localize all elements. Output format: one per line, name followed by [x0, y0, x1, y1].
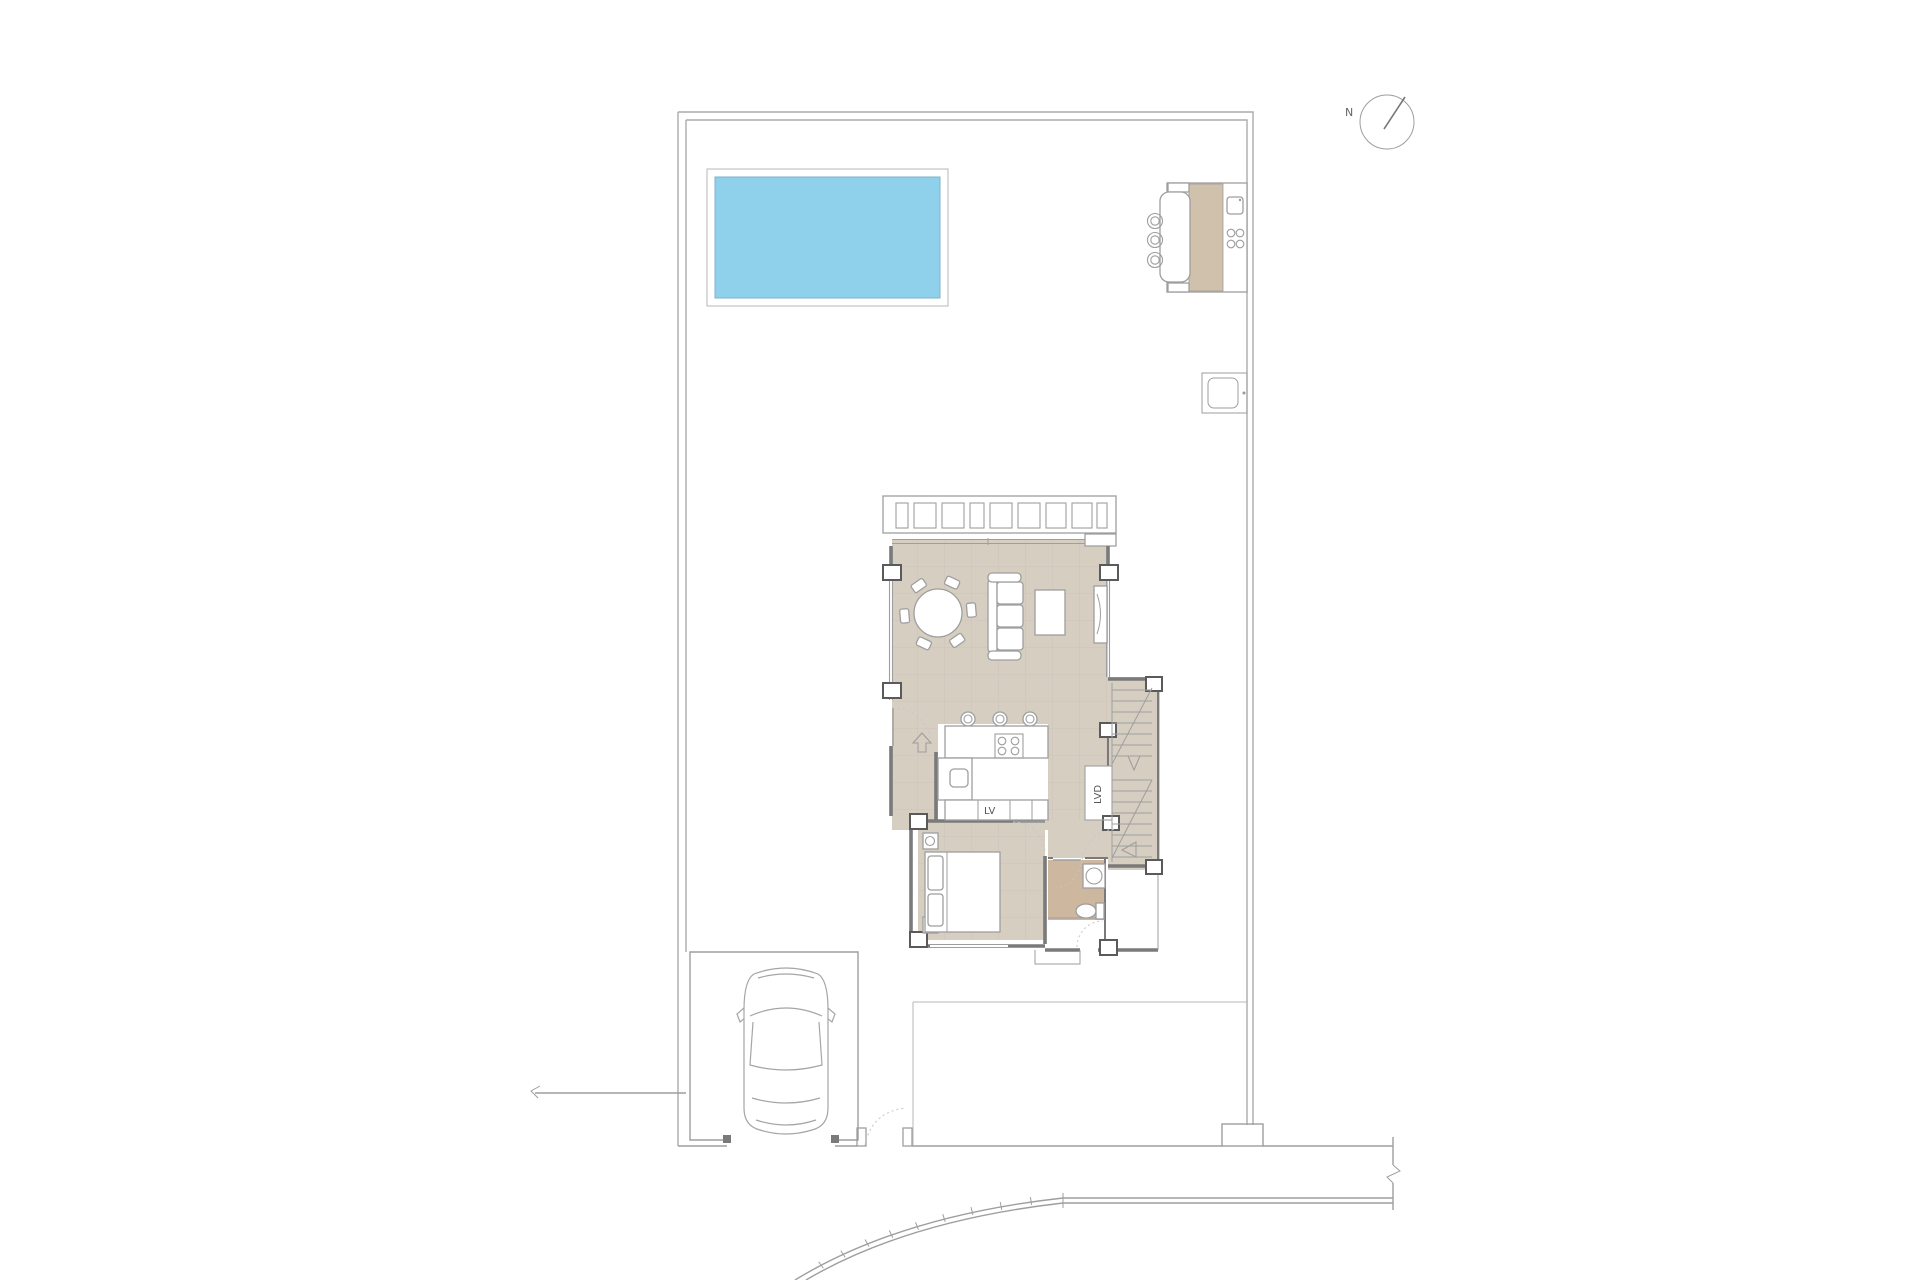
gate-post	[903, 1128, 912, 1146]
garage	[690, 952, 858, 1143]
outdoor-kitchen	[1148, 183, 1248, 292]
bench-cap	[1168, 283, 1189, 292]
road-curve-inner	[806, 1203, 1063, 1280]
break-mark	[1387, 1165, 1400, 1183]
bench-cap	[1168, 183, 1189, 192]
outdoor-table-strip	[1189, 184, 1223, 291]
patio	[913, 1002, 1247, 1145]
north-label: N	[1345, 106, 1353, 119]
site-plan-canvas: N	[0, 0, 1920, 1280]
north-circle	[1360, 95, 1414, 149]
north-indicator: N	[1345, 95, 1414, 149]
shower-floor	[1048, 920, 1104, 947]
faucet-dot	[1239, 199, 1241, 201]
car	[737, 968, 835, 1134]
bar-stool	[1023, 712, 1037, 726]
hall-floor	[1048, 820, 1108, 858]
pillow	[928, 894, 943, 926]
pool-water	[715, 177, 940, 298]
tv-unit	[1094, 586, 1107, 643]
road-curve-outer	[795, 1198, 1063, 1280]
porch-step	[1035, 950, 1080, 964]
utility-box	[1202, 373, 1247, 413]
gate-pillar-notch	[1222, 1124, 1263, 1146]
floor-plan-drawing: N	[0, 0, 1920, 1280]
outdoor-dining-table	[1160, 192, 1190, 282]
break-mark	[531, 1086, 540, 1098]
coffee-table	[1035, 590, 1065, 635]
gate-swing-arc	[865, 1108, 905, 1145]
kitchen-island	[945, 726, 1048, 758]
site-road-lines	[531, 1086, 1400, 1280]
pillow	[928, 856, 943, 890]
round-dining-table	[914, 589, 962, 637]
bar-stool	[961, 712, 975, 726]
kitchen-sink	[950, 769, 968, 787]
stair-floor	[1108, 677, 1160, 870]
bar-stool	[993, 712, 1007, 726]
north-needle	[1384, 97, 1405, 129]
sofa	[988, 573, 1023, 660]
swimming-pool	[707, 169, 948, 306]
ne-corner-wall	[1085, 534, 1116, 546]
laundry-label: LVD	[1093, 785, 1104, 804]
kitchen-counter-south	[945, 800, 1048, 820]
pergola	[883, 496, 1116, 533]
toilet	[1076, 903, 1104, 919]
dishwasher-label: LV	[984, 806, 995, 817]
